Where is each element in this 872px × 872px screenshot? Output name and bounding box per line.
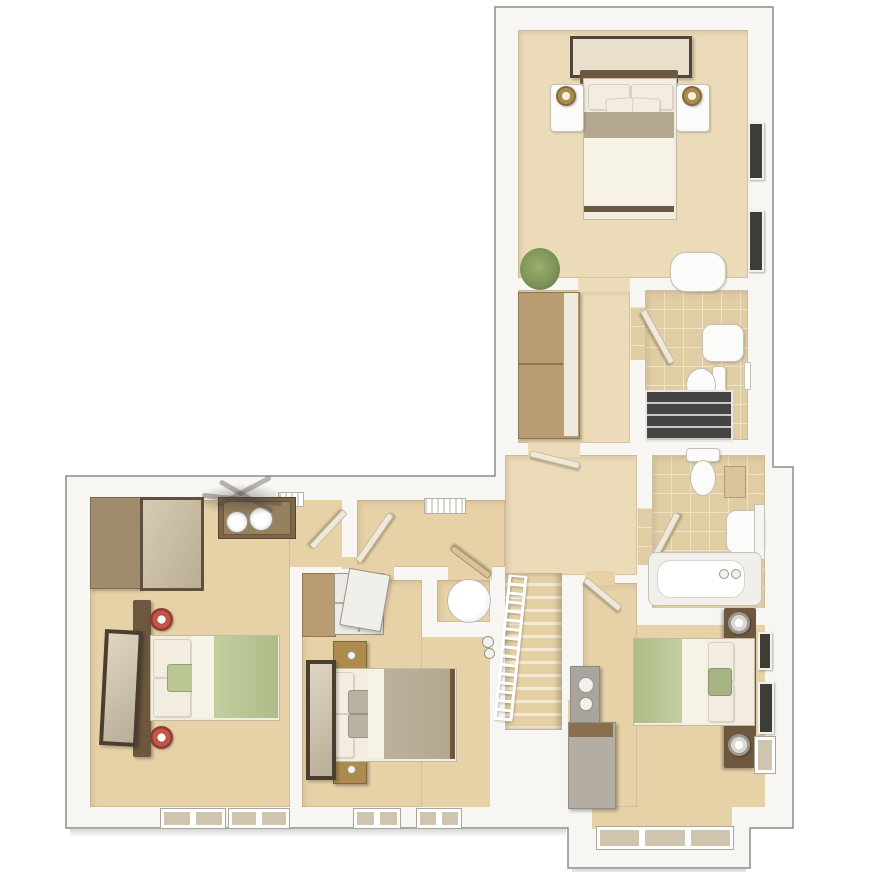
master-bed-throw [584, 112, 674, 138]
bedroom2-entry-floor [290, 500, 342, 567]
master-bed-duvet [584, 138, 674, 206]
leaning-mirror [306, 660, 336, 780]
sheet-band [368, 669, 384, 759]
cabinet-knob [578, 677, 594, 693]
green-cushion [167, 664, 194, 692]
plant [520, 248, 560, 290]
dresser [568, 722, 616, 809]
master-bed-footrail [584, 206, 674, 212]
master-opening [578, 278, 630, 292]
landing-floor [505, 455, 637, 575]
bedroom2-wardrobe [90, 497, 142, 589]
sheet-band [682, 639, 706, 723]
window-pane [758, 740, 772, 770]
crystal-lamp [728, 612, 750, 634]
window-pane [357, 812, 374, 825]
ground-shadow [70, 829, 566, 837]
sheet-band [192, 636, 214, 718]
radiator [424, 498, 466, 514]
window-pane [196, 812, 222, 825]
bedroom2-duvet [214, 636, 278, 718]
bedroom3-window [353, 808, 401, 829]
bedroom4-side-window [754, 736, 776, 774]
bath-tap [719, 569, 729, 579]
brass-lamp [682, 86, 702, 106]
red-lamp [150, 608, 173, 631]
wardrobe-divider [519, 363, 563, 365]
window-pane [600, 830, 639, 846]
floor-plan [0, 0, 872, 872]
master-wall-window [748, 122, 764, 180]
ensuite-shower [645, 390, 733, 442]
toilet [690, 460, 716, 496]
master-wall-window [748, 210, 764, 272]
crystal-lamp [728, 734, 750, 756]
drawer-knob [347, 765, 356, 774]
round-basin [447, 579, 491, 623]
window-pane [691, 830, 730, 846]
bedroom-chair [670, 252, 726, 292]
bathroom-shelf [724, 466, 746, 498]
window-pane [262, 812, 286, 825]
towel-rail [744, 362, 751, 390]
toilet-roll [484, 648, 495, 659]
bedroom2-window [160, 808, 226, 829]
wall-frame [758, 682, 774, 734]
window-pane [164, 812, 190, 825]
green-cushion [708, 668, 732, 696]
window-pane [442, 812, 458, 825]
window-pane [645, 830, 684, 846]
brass-lamp [556, 86, 576, 106]
toilet-roll [482, 636, 494, 648]
bedroom3-wardrobe [302, 573, 336, 637]
window-pane [420, 812, 436, 825]
bedroom3-window [416, 808, 462, 829]
bathtub-inner [657, 560, 745, 598]
wall-cabinet [570, 666, 600, 724]
bay-window [596, 826, 734, 850]
master-wardrobe [518, 292, 580, 439]
bath-tap [731, 569, 741, 579]
bed-footrail [450, 669, 455, 759]
bedroom4-duvet [634, 639, 682, 723]
bedroom3-duvet [384, 669, 450, 759]
brass-bedside-table [333, 641, 367, 669]
red-lamp [150, 726, 173, 749]
window-pane [232, 812, 256, 825]
window-pane [380, 812, 397, 825]
dresser-top [569, 723, 613, 737]
bathtub [648, 552, 762, 606]
bedroom2-wardrobe-mirror [140, 497, 204, 591]
wardrobe-front [563, 293, 578, 436]
bedroom2-window [228, 808, 290, 829]
cabinet-knob [579, 697, 593, 711]
ensuite-basin [702, 324, 744, 362]
drawer-knob [347, 651, 356, 660]
wall-frame [758, 632, 772, 670]
leaning-mirror [99, 629, 143, 747]
